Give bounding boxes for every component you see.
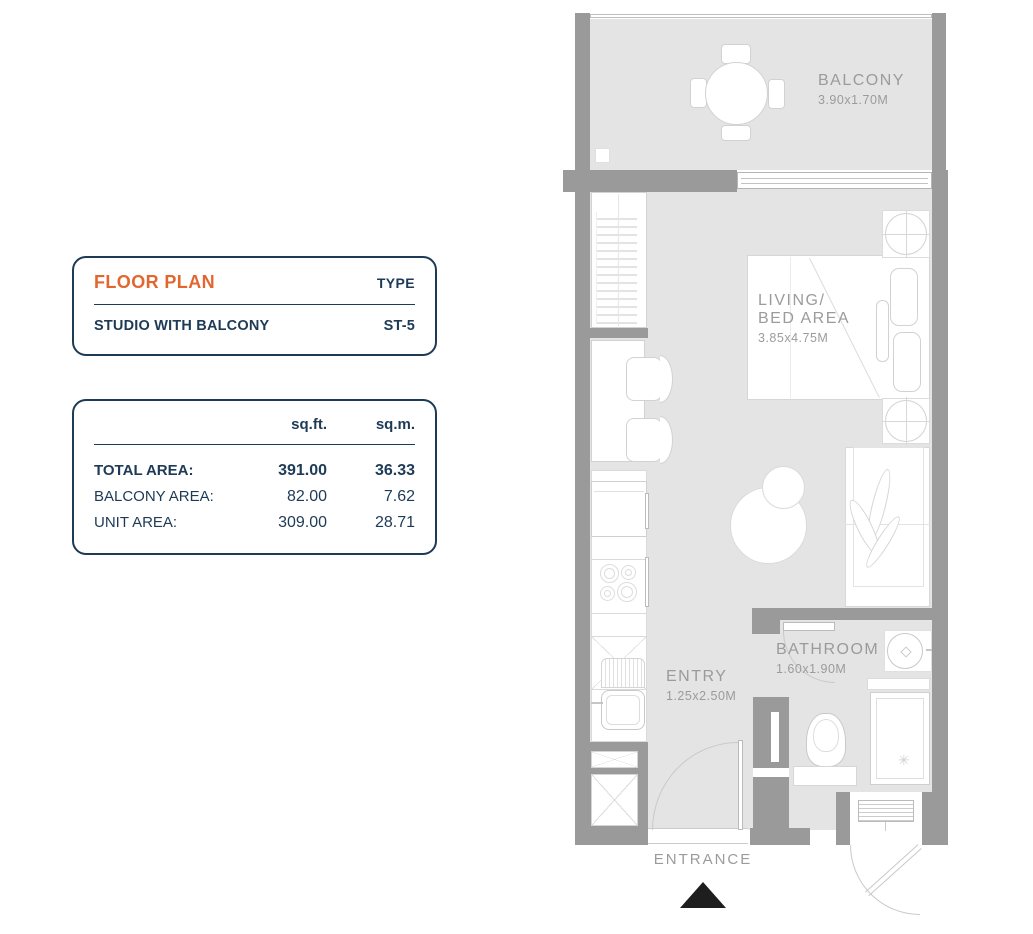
card-unit-row: STUDIO WITH BALCONY ST-5 (94, 318, 415, 334)
wall-gap (753, 768, 789, 777)
floor-plan-drawing: BALCONY 3.90x1.70M (560, 0, 1033, 934)
entrance-label: ENTRANCE (638, 851, 768, 868)
wall-slit (771, 712, 779, 762)
room-dimensions: 3.90x1.70M (818, 93, 905, 107)
wall-entry-bathroom-lower (753, 777, 789, 830)
balcony-round-table (705, 62, 768, 125)
balcony-chair (721, 125, 751, 141)
room-name: ENTRY (666, 668, 736, 686)
wall-niche-left (836, 792, 850, 845)
wall-niche-right (922, 792, 948, 845)
bathroom-label: BATHROOM 1.60x1.90M (776, 641, 879, 676)
fridge (591, 481, 647, 537)
table-divider (94, 444, 415, 445)
bathroom-sink (887, 633, 923, 669)
row-sqft: 309.00 (232, 510, 327, 536)
row-sqm: 28.71 (327, 510, 415, 536)
row-sqm: 7.62 (327, 484, 415, 510)
table-lamp (885, 213, 927, 255)
toilet (806, 713, 846, 767)
room-dimensions: 1.25x2.50M (666, 689, 736, 703)
table-row-balcony: BALCONY AREA: 82.00 7.62 (94, 484, 415, 510)
entry-label: ENTRY 1.25x2.50M (666, 668, 736, 703)
dining-chair (626, 418, 662, 462)
side-table (762, 466, 805, 509)
col-header-sqm: sq.m. (327, 416, 415, 433)
stove-burner (600, 586, 615, 601)
dining-chair (626, 357, 662, 401)
entrance-arrow-icon (680, 882, 726, 908)
room-name: BATHROOM (776, 641, 879, 659)
wardrobe-divider-line (618, 194, 619, 326)
row-label: TOTAL AREA: (94, 458, 232, 484)
bathroom-door-leaf (783, 622, 835, 631)
kitchen-sink (601, 690, 645, 730)
wall-bottom-middle (750, 828, 810, 845)
sink-drainer (601, 658, 645, 688)
page-title: FLOOR PLAN (94, 272, 215, 293)
wall-under-balcony (563, 170, 737, 192)
wall-balcony-right (932, 13, 946, 171)
service-shaft (591, 751, 638, 768)
area-table-card: sq.ft. sq.m. TOTAL AREA: 391.00 36.33 BA… (72, 399, 437, 555)
wall-balcony-left (575, 13, 590, 171)
sliding-door (737, 172, 932, 189)
balcony-floor-drain (595, 148, 610, 163)
floor-plan-page: FLOOR PLAN TYPE STUDIO WITH BALCONY ST-5… (0, 0, 1033, 934)
card-header-row: FLOOR PLAN TYPE (94, 272, 415, 293)
cabinet-handle (645, 557, 649, 607)
balcony-chair (721, 44, 751, 64)
room-name-line2: BED AREA (758, 310, 850, 328)
row-label: BALCONY AREA: (94, 484, 232, 510)
col-header-sqft: sq.ft. (232, 416, 327, 433)
row-label: UNIT AREA: (94, 510, 232, 536)
area-table-header: sq.ft. sq.m. (94, 416, 415, 433)
wardrobe-hangers (596, 212, 637, 324)
shower-shelf (867, 678, 930, 690)
living-bed-label: LIVING/ BED AREA 3.85x4.75M (758, 292, 850, 345)
balcony-railing (590, 14, 932, 18)
fridge-handle (645, 493, 649, 529)
type-heading: TYPE (377, 275, 415, 291)
row-sqm: 36.33 (327, 458, 415, 484)
shower (870, 692, 930, 785)
grille-tick (885, 822, 886, 831)
bed-cushion (876, 300, 889, 362)
stove-burner (617, 582, 637, 602)
bathroom-faucet (926, 649, 932, 651)
table-row-unit: UNIT AREA: 309.00 28.71 (94, 510, 415, 536)
balcony-chair (768, 79, 785, 109)
room-dimensions: 3.85x4.75M (758, 331, 850, 345)
wall-right (932, 170, 948, 845)
stove-burner (600, 564, 619, 583)
unit-name: STUDIO WITH BALCONY (94, 318, 269, 334)
bed-pillow (893, 332, 921, 392)
wall-stub (575, 328, 648, 338)
bed-pillow (890, 268, 918, 326)
row-sqft: 391.00 (232, 458, 327, 484)
table-row-total: TOTAL AREA: 391.00 36.33 (94, 458, 415, 484)
room-dimensions: 1.60x1.90M (776, 662, 879, 676)
balcony-label: BALCONY 3.90x1.70M (818, 72, 905, 107)
kitchen-faucet (591, 702, 603, 704)
wall-bathroom-stub (752, 608, 780, 634)
service-shaft (591, 774, 638, 826)
floor-plan-card: FLOOR PLAN TYPE STUDIO WITH BALCONY ST-5 (72, 256, 437, 356)
room-name: BALCONY (818, 72, 905, 90)
bathroom-vanity (793, 766, 857, 786)
row-sqft: 82.00 (232, 484, 327, 510)
room-name-line1: LIVING/ (758, 292, 850, 310)
entrance-threshold (648, 828, 748, 844)
ac-grille (858, 800, 914, 822)
table-lamp (885, 400, 927, 442)
entry-door-leaf (738, 740, 743, 830)
unit-type-code: ST-5 (384, 318, 415, 334)
card-divider (94, 304, 415, 305)
stove-burner (621, 565, 636, 580)
shower-spray-icon: ✳ (898, 752, 910, 769)
